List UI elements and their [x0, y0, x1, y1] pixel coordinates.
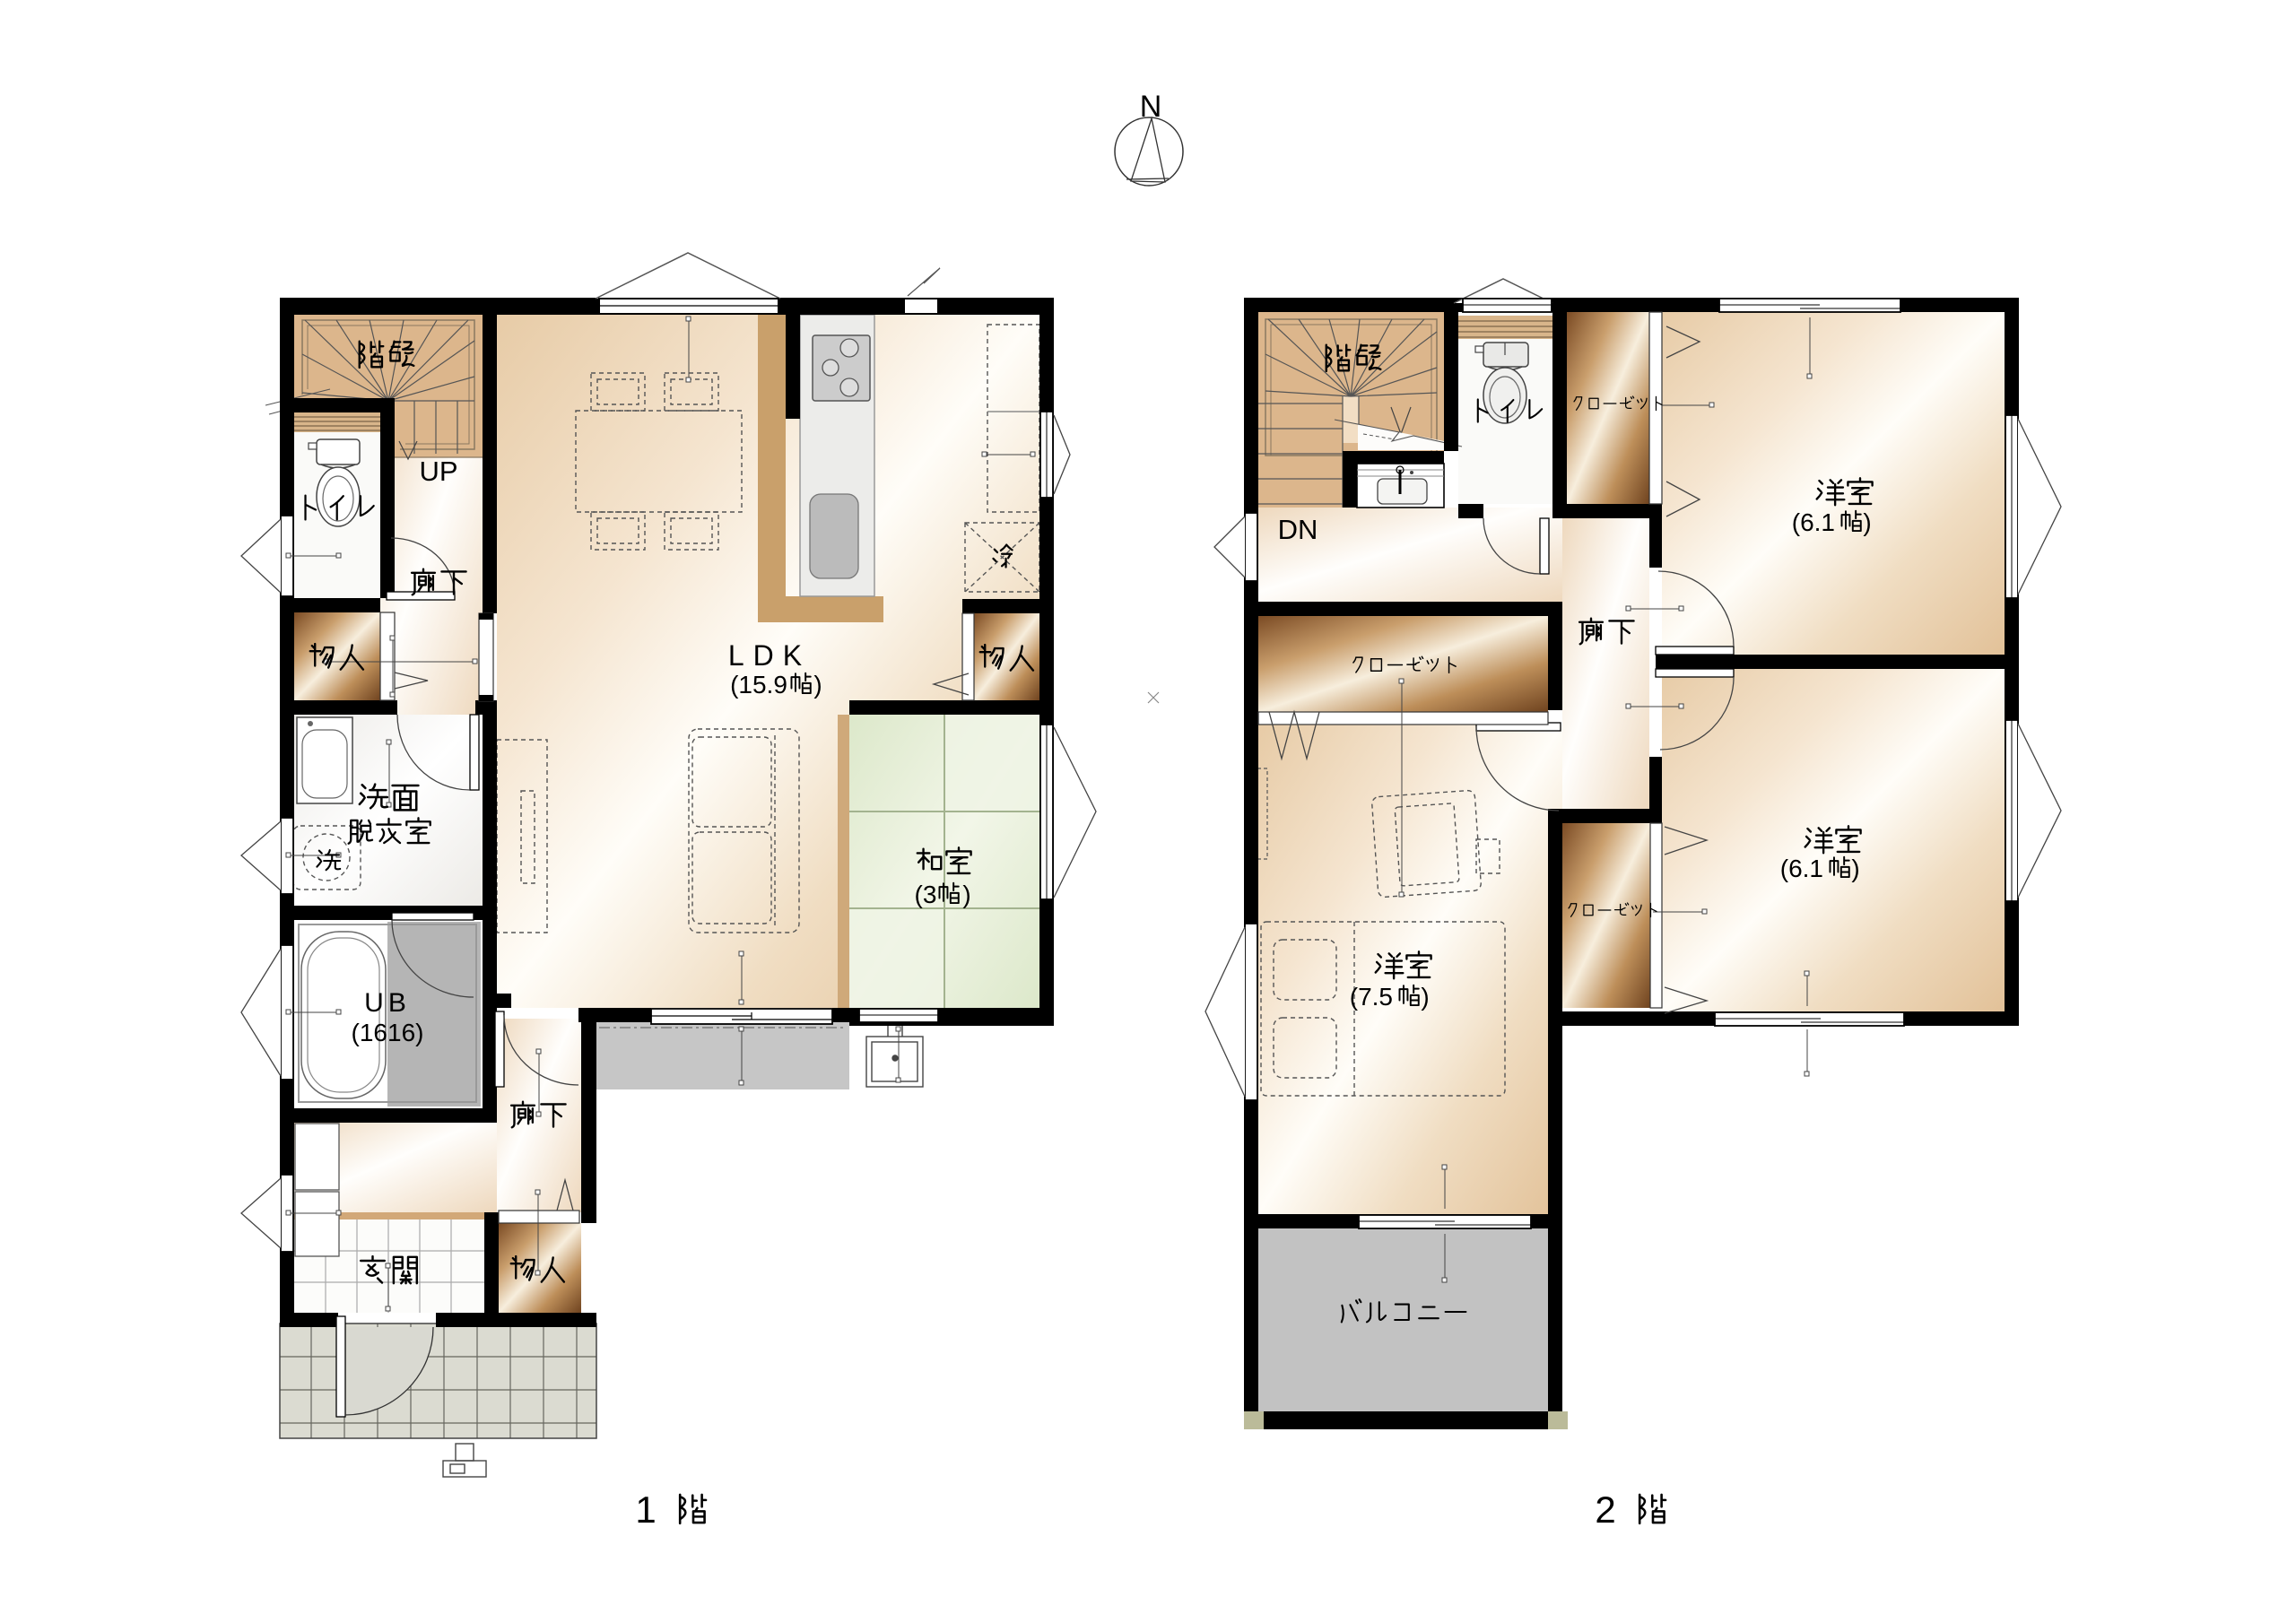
svg-text:(7.5: (7.5: [1350, 983, 1393, 1011]
svg-text:2: 2: [1595, 1488, 1615, 1531]
svg-text:(15.9: (15.9: [730, 671, 787, 699]
svg-text:(3: (3: [915, 881, 937, 908]
svg-text:(6.1: (6.1: [1792, 508, 1835, 536]
svg-text:(6.1: (6.1: [1780, 855, 1823, 882]
svg-text:): ): [1863, 508, 1871, 536]
svg-text:(1616): (1616): [352, 1019, 424, 1046]
svg-text:1: 1: [635, 1488, 656, 1531]
svg-text:): ): [813, 671, 822, 699]
svg-text:): ): [962, 881, 970, 908]
svg-text:): ): [1421, 983, 1429, 1011]
svg-text:): ): [1851, 855, 1859, 882]
svg-text:DN: DN: [1278, 514, 1318, 545]
svg-text:UB: UB: [364, 988, 411, 1018]
svg-text:LDK: LDK: [728, 639, 811, 672]
svg-text:UP: UP: [419, 456, 457, 487]
